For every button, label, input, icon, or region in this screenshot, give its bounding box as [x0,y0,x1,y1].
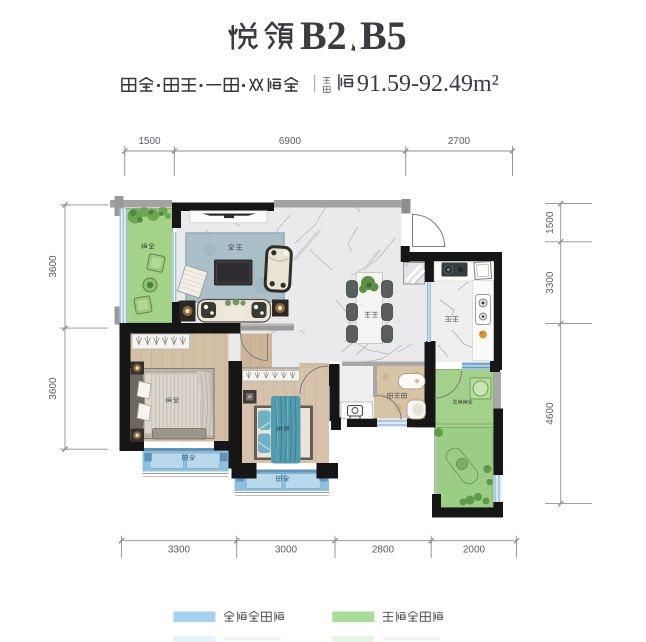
svg-text:2700: 2700 [448,136,471,147]
svg-text:2800: 2800 [372,545,395,556]
svg-text:4600: 4600 [545,402,556,425]
svg-text:3600: 3600 [48,255,59,278]
svg-text:B2: B2 [300,13,347,58]
svg-text:1500: 1500 [545,211,556,234]
svg-text:6900: 6900 [279,136,302,147]
svg-text:B5: B5 [360,13,407,58]
svg-text:1500: 1500 [138,136,161,147]
svg-text:3600: 3600 [48,377,59,400]
svg-text:3000: 3000 [275,545,298,556]
svg-text:3300: 3300 [545,271,556,294]
svg-text:91.59-92.49m²: 91.59-92.49m² [357,71,499,97]
svg-text:3300: 3300 [168,545,191,556]
svg-text:2000: 2000 [463,545,486,556]
